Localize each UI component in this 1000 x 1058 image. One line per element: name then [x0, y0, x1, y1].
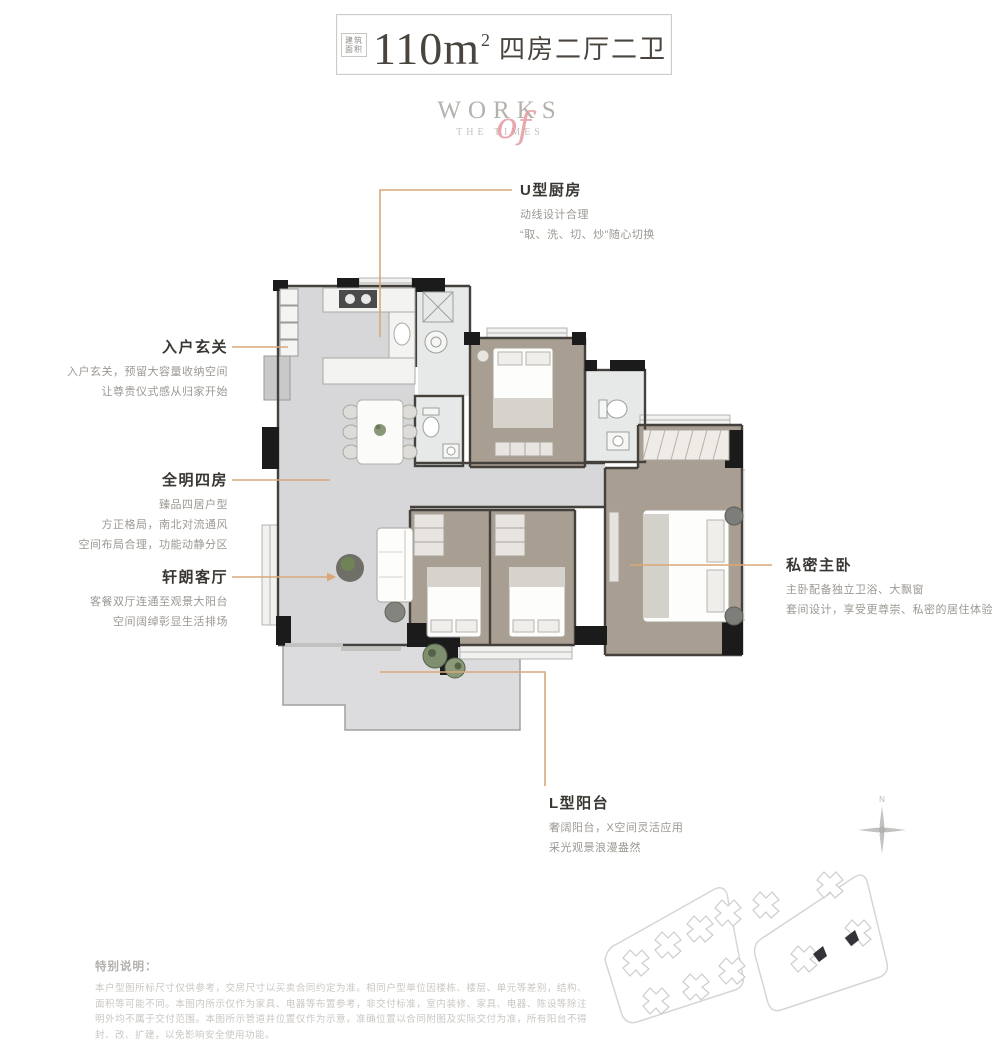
brand-logo: WORKS THE TIMES of: [0, 98, 1000, 139]
balcony-plant: [423, 644, 447, 668]
sofa: [377, 528, 413, 602]
area-superscript: 2: [481, 30, 491, 50]
callout-kitchen-line: “取、洗、切、炒”随心切换: [520, 225, 655, 245]
callout-master-title: 私密主卧: [786, 554, 996, 575]
area-prefix-line1: 建筑: [345, 36, 363, 45]
area-value: 110m2: [373, 17, 491, 72]
callout-bedrooms: 全明四房 臻品四居户型 方正格局，南北对流通风 空间布局合理，功能动静分区: [18, 469, 228, 555]
callout-living-line: 客餐双厅连通至观景大阳台: [18, 592, 228, 612]
callout-foyer-title: 入户玄关: [18, 336, 228, 357]
stove: [339, 290, 377, 308]
callout-living-line: 空间阔绰彰显生活排场: [18, 612, 228, 632]
callout-living-title: 轩朗客厅: [18, 566, 228, 587]
callout-foyer-line: 让尊贵仪式感从归家开始: [18, 382, 228, 402]
master-tv-console: [609, 512, 619, 582]
callout-kitchen-line: 动线设计合理: [520, 205, 655, 225]
callout-bedrooms-line: 方正格局，南北对流通风: [18, 515, 228, 535]
callout-master: 私密主卧 主卧配备独立卫浴、大飘窗 套间设计，享受更尊崇、私密的居住体验: [786, 554, 996, 620]
callout-bedrooms-line: 臻品四居户型: [18, 495, 228, 515]
callout-master-line: 主卧配备独立卫浴、大飘窗: [786, 580, 996, 600]
disclaimer-title: 特别说明：: [95, 958, 587, 974]
entry-cabinets: [280, 289, 298, 356]
callout-master-line: 套间设计，享受更尊崇、私密的居住体验: [786, 600, 996, 620]
balcony-plant: [445, 658, 465, 678]
callout-living: 轩朗客厅 客餐双厅连通至观景大阳台 空间阔绰彰显生活排场: [18, 566, 228, 632]
callout-kitchen-title: U型厨房: [520, 179, 655, 200]
floor-plan: [255, 272, 745, 734]
callout-bedrooms-line: 空间布局合理，功能动静分区: [18, 535, 228, 555]
disclaimer: 特别说明： 本户型图所标尺寸仅供参考，交房尺寸以买卖合同约定为准。相同户型单位因…: [95, 958, 587, 1043]
kitchen-sink: [394, 323, 410, 345]
compass-north-label: N: [879, 795, 885, 804]
area-prefix: 建筑 面积: [341, 33, 367, 57]
site-plan: [595, 858, 895, 1040]
compass-icon: N: [852, 792, 912, 856]
callout-balcony: L型阳台 奢阔阳台，X空间灵活应用 采光观景浪漫盎然: [549, 792, 683, 858]
logo-script-glyph: of: [496, 106, 531, 147]
callout-kitchen: U型厨房 动线设计合理 “取、洗、切、炒”随心切换: [520, 179, 655, 245]
title-box: 建筑 面积 110m2 四房二厅二卫: [336, 14, 672, 75]
callout-bedrooms-title: 全明四房: [18, 469, 228, 490]
layout-description: 四房二厅二卫: [499, 23, 667, 66]
dining-set: [343, 400, 417, 464]
callout-balcony-line: 采光观景浪漫盎然: [549, 838, 683, 858]
coffee-table: [385, 602, 405, 622]
callout-foyer-line: 入户玄关，预留大容量收纳空间: [18, 362, 228, 382]
callout-foyer: 入户玄关 入户玄关，预留大容量收纳空间 让尊贵仪式感从归家开始: [18, 336, 228, 402]
callout-balcony-line: 奢阔阳台，X空间灵活应用: [549, 818, 683, 838]
callout-balcony-title: L型阳台: [549, 792, 683, 813]
disclaimer-body: 本户型图所标尺寸仅供参考，交房尺寸以买卖合同约定为准。相同户型单位因楼栋、楼层、…: [95, 981, 587, 1043]
floorplan-page: 建筑 面积 110m2 四房二厅二卫 WORKS THE TIMES of: [0, 0, 1000, 1058]
area-prefix-line2: 面积: [345, 45, 363, 54]
